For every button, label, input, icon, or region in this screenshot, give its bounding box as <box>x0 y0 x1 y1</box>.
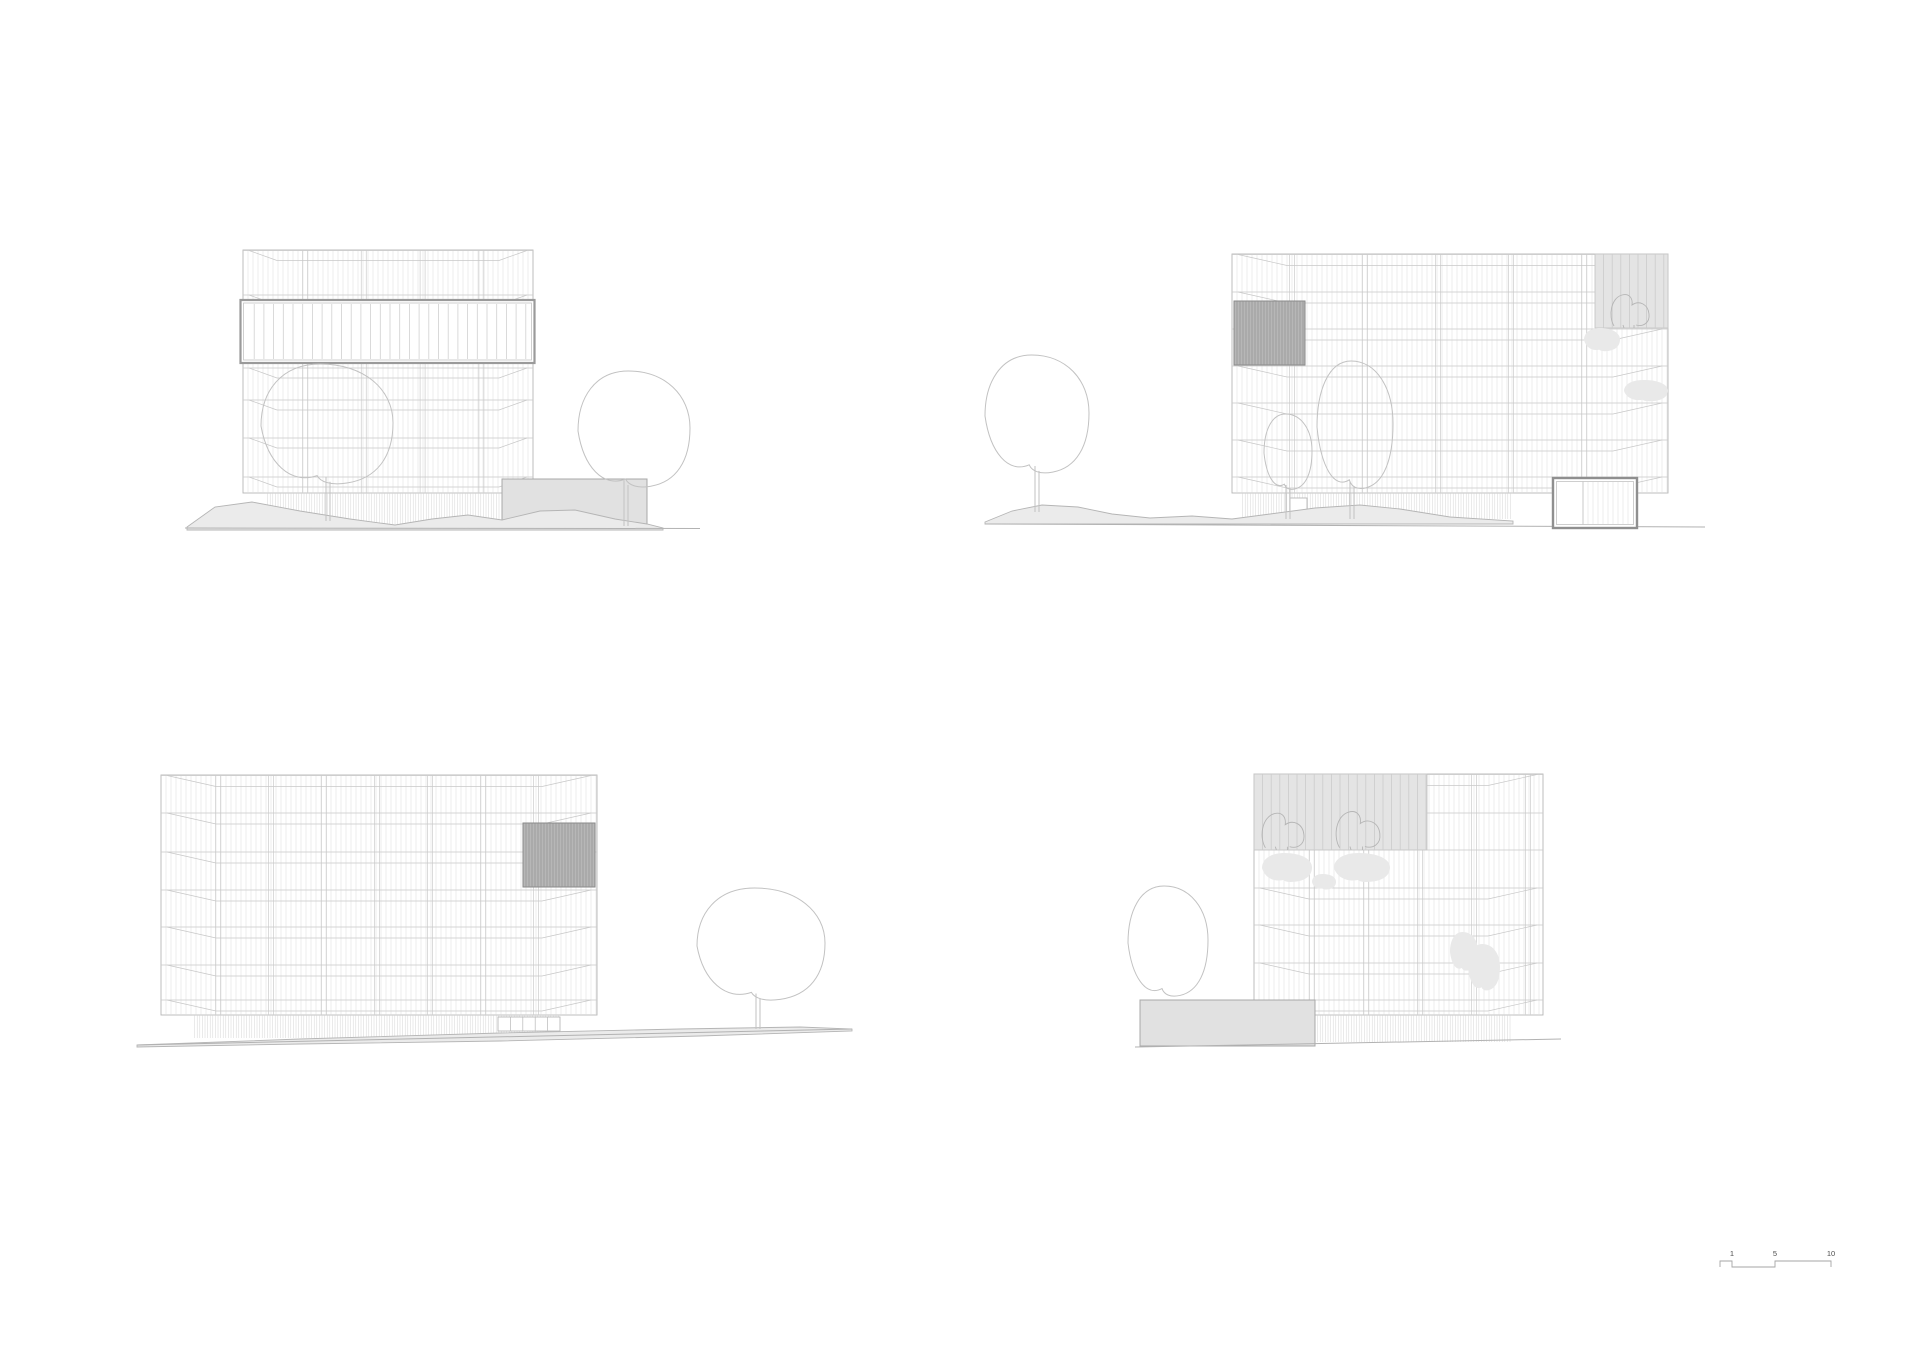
elevation-bottom-left-dark-panel-0 <box>523 823 595 887</box>
elevation-top-right-dark-panel-0 <box>1234 301 1305 365</box>
scale-bar: 1510 <box>1720 1249 1835 1267</box>
elevation-bottom-right <box>1128 774 1561 1047</box>
elevation-top-left-highlight-band <box>241 300 535 363</box>
elevation-bottom-left-tree-0 <box>697 888 825 1029</box>
elevation-bottom-right-annex-0 <box>1140 1000 1315 1046</box>
elevation-bottom-left <box>137 775 852 1047</box>
elevation-top-left-ground-line <box>185 528 700 529</box>
elevation-top-right-terrain <box>985 505 1513 524</box>
scale-bar-label-5: 5 <box>1773 1249 1777 1258</box>
elevation-bottom-right-shrub-0 <box>1128 886 1208 996</box>
drawing-sheet: 1510 <box>0 0 1920 1357</box>
elevation-bottom-left-door-0 <box>498 1017 560 1031</box>
building-elevations-drawing: 1510 <box>0 0 1920 1357</box>
elevation-top-left-facade <box>243 250 533 493</box>
elevation-bottom-right-plinth <box>1315 1015 1513 1042</box>
elevation-top-right-light-panel-0 <box>1595 254 1668 328</box>
scale-bar-label-1: 1 <box>1730 1249 1734 1258</box>
scale-bar-label-10: 10 <box>1827 1249 1835 1258</box>
elevation-top-right-tree-0 <box>985 355 1089 512</box>
elevation-top-left <box>185 250 700 530</box>
elevation-bottom-right-light-panel-0 <box>1254 774 1427 850</box>
elevation-top-right <box>985 254 1705 528</box>
elevation-top-right-pavilion <box>1553 478 1637 528</box>
elevation-bottom-left-facade <box>161 775 597 1015</box>
